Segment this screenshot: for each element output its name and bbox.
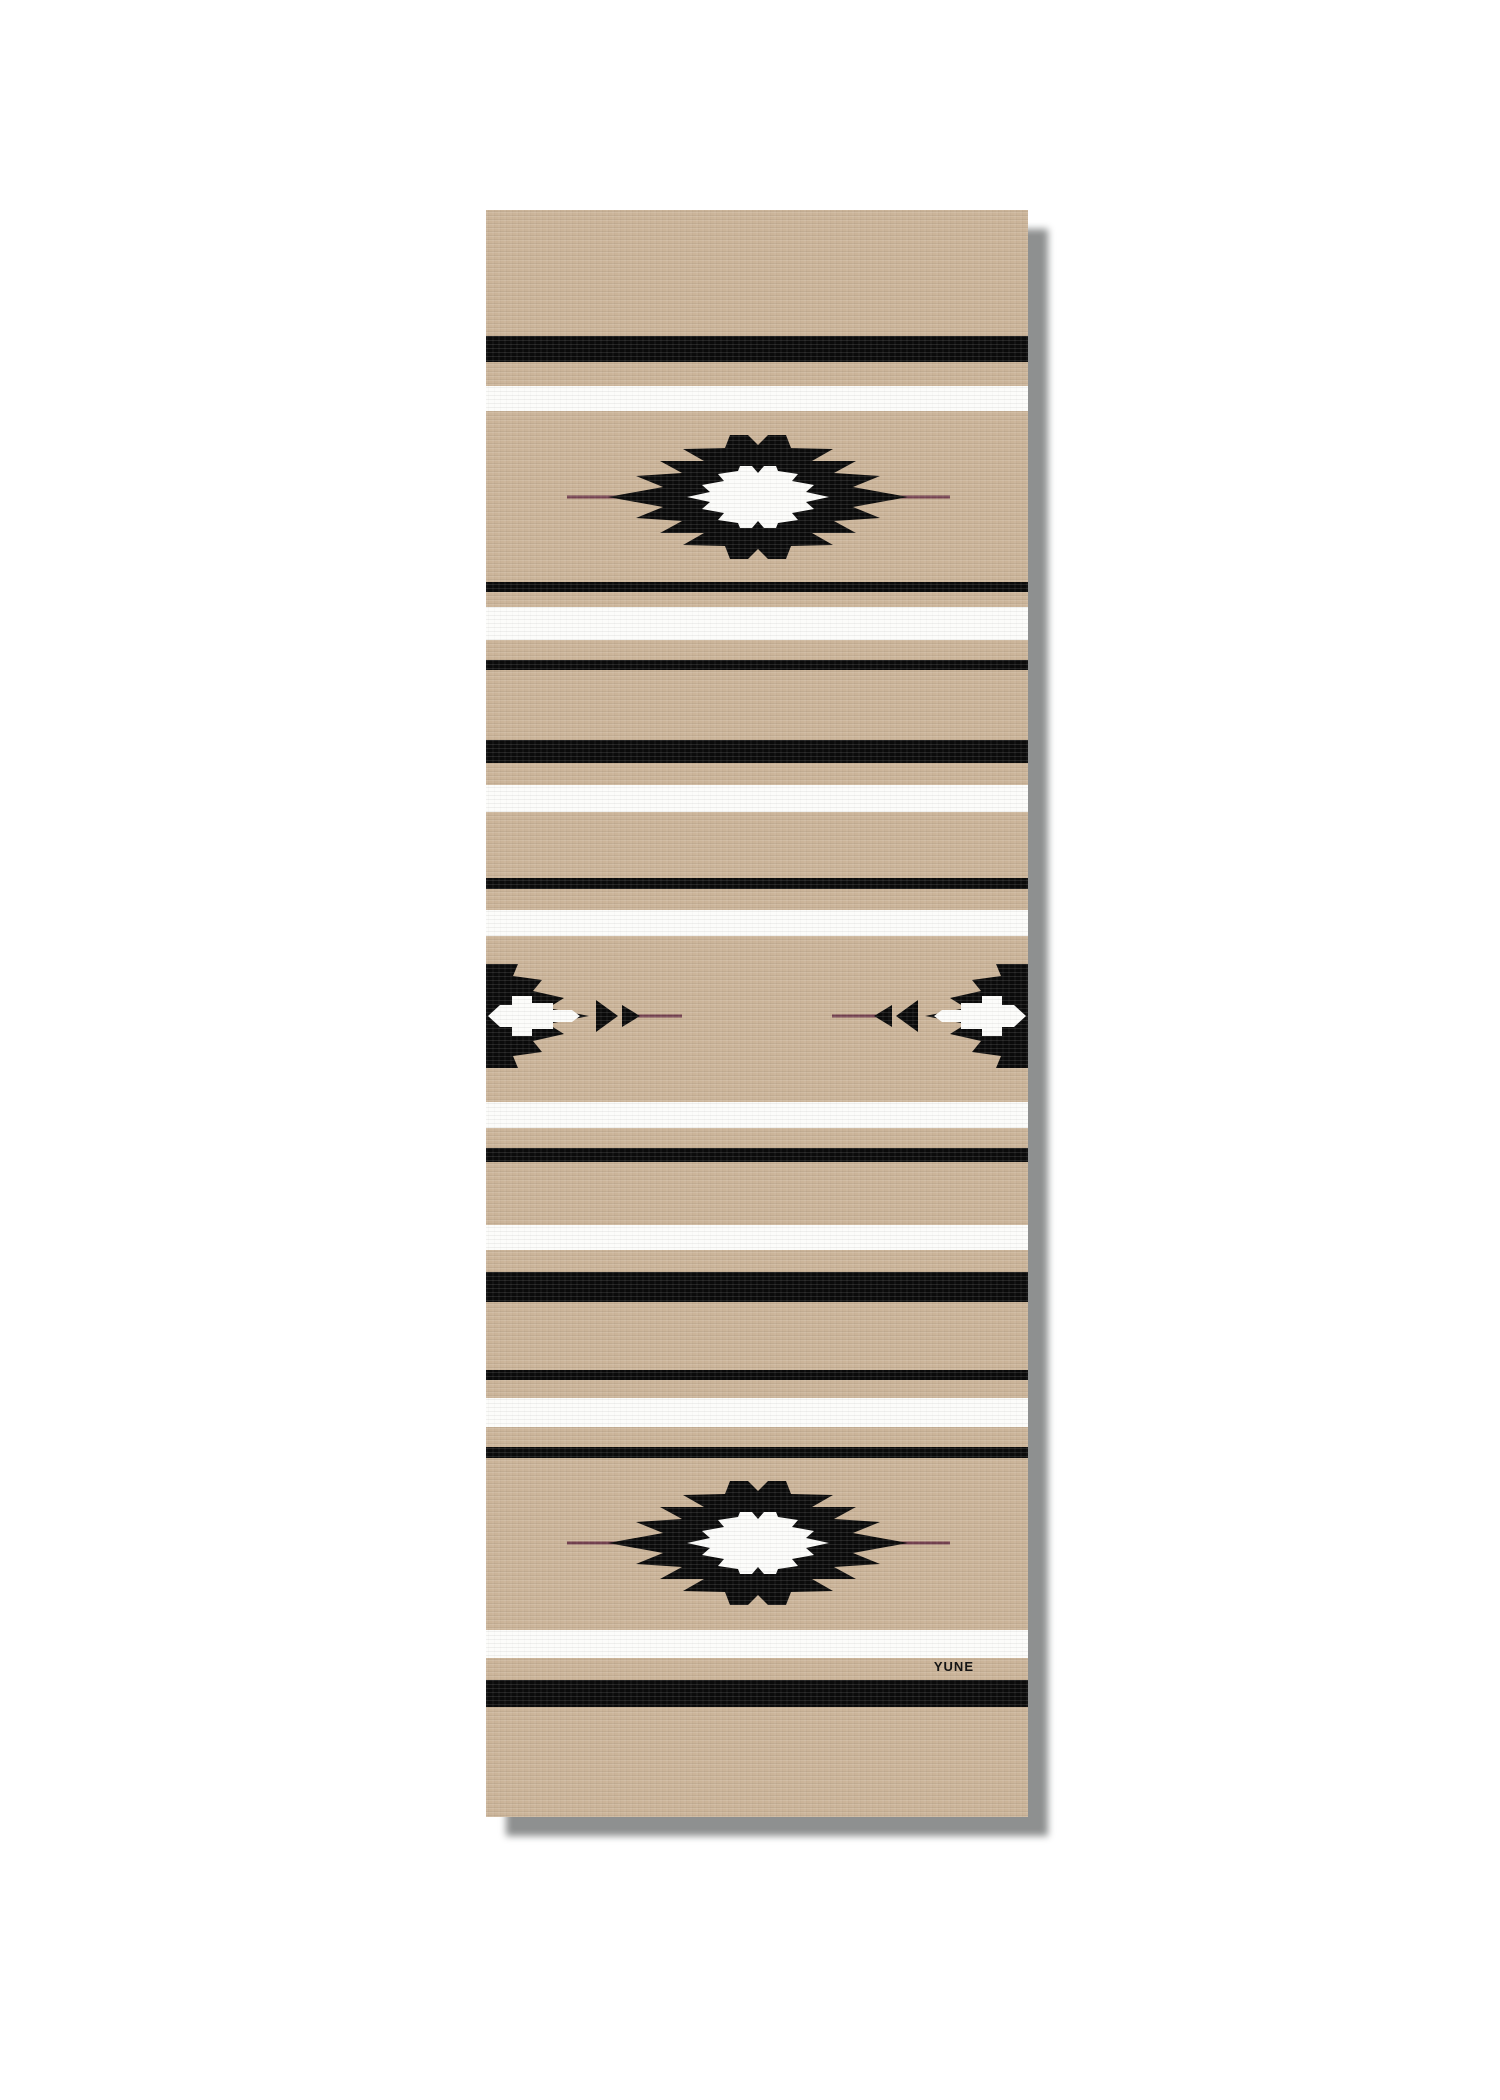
yoga-mat: YUNE [486,210,1028,1817]
mat-stripe-black [486,740,1028,763]
motif-echo-spike [874,1005,892,1027]
mat-stripe-black [486,1272,1028,1302]
mat-stripe-white [486,910,1028,936]
motif-echo-spike [596,1000,618,1032]
mat-stripe-white [486,1102,1028,1128]
motif-echo-spike [622,1005,640,1027]
mat-stripe-white [486,1630,1028,1658]
motif-echo-spike [896,1000,918,1032]
mat-stripe-black [486,660,1028,670]
mat-stripe-white [486,1225,1028,1250]
brand-logo-text: YUNE [934,1660,974,1673]
mat-stripe-black [486,1447,1028,1458]
mat-stripe-black [486,582,1028,592]
mat-stripe-white [486,785,1028,812]
mat-stripe-white [486,1398,1028,1427]
mat-stripe-black [486,878,1028,889]
mat-stripe-black [486,1370,1028,1380]
mat-stripe-white [486,607,1028,640]
aztec-motif-full [563,433,953,561]
mat-stripe-white [486,386,1028,411]
aztec-motif-half-left [486,952,686,1080]
page-background: { "brand": { "logo_text": "YUNE" }, "mat… [0,0,1500,2100]
mat-stripe-black [486,1680,1028,1707]
mat-stripe-black [486,336,1028,362]
mat-stripe-black [486,1148,1028,1162]
aztec-motif-half-right [828,952,1028,1080]
aztec-motif-full [563,1479,953,1607]
